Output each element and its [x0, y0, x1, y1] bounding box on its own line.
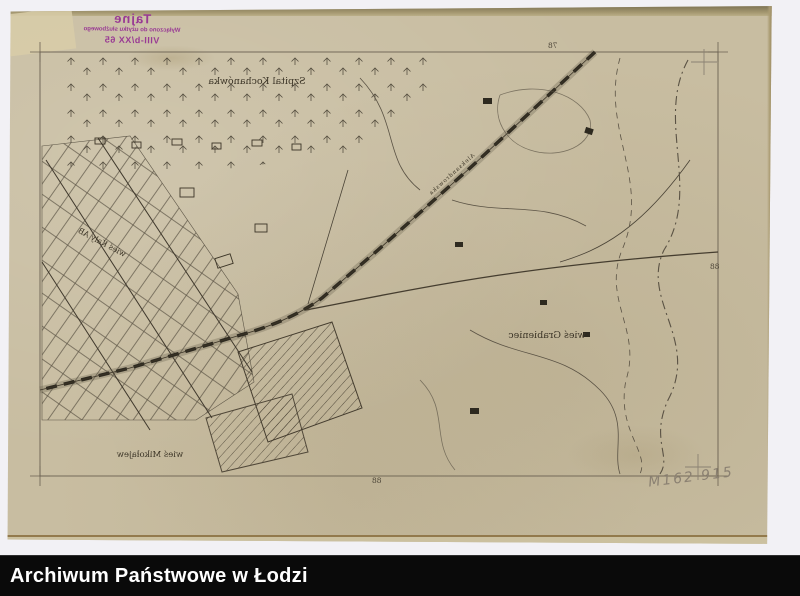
paper-right-edge	[767, 5, 774, 546]
stamp-line3: VIII-b/XX 65	[66, 34, 198, 48]
label-village-mikolajew: wieś Mikołajew	[96, 450, 204, 460]
paper-stain	[126, 45, 216, 71]
grid-number-right: 88	[710, 262, 720, 271]
grid-number-bottom: 88	[372, 476, 382, 485]
archive-footer-bar: Archiwum Państwowe w Łodzi	[0, 555, 800, 596]
label-village-grabieniec: wieś Grabieniec	[484, 330, 610, 341]
scan-viewer: Szpital Kochanówka wieś Kały AB wieś Gra…	[0, 0, 800, 596]
archive-name: Archiwum Państwowe w Łodzi	[0, 565, 308, 588]
secrecy-stamp: Tajne Wyłączono do użytku służbowego VII…	[66, 10, 199, 47]
tape-remnant	[0, 7, 76, 58]
grid-number-top: 78	[548, 41, 558, 50]
scan-paper	[6, 5, 774, 546]
label-hospital: Szpital Kochanówka	[196, 76, 318, 87]
paper-bottom-edge	[6, 535, 774, 546]
